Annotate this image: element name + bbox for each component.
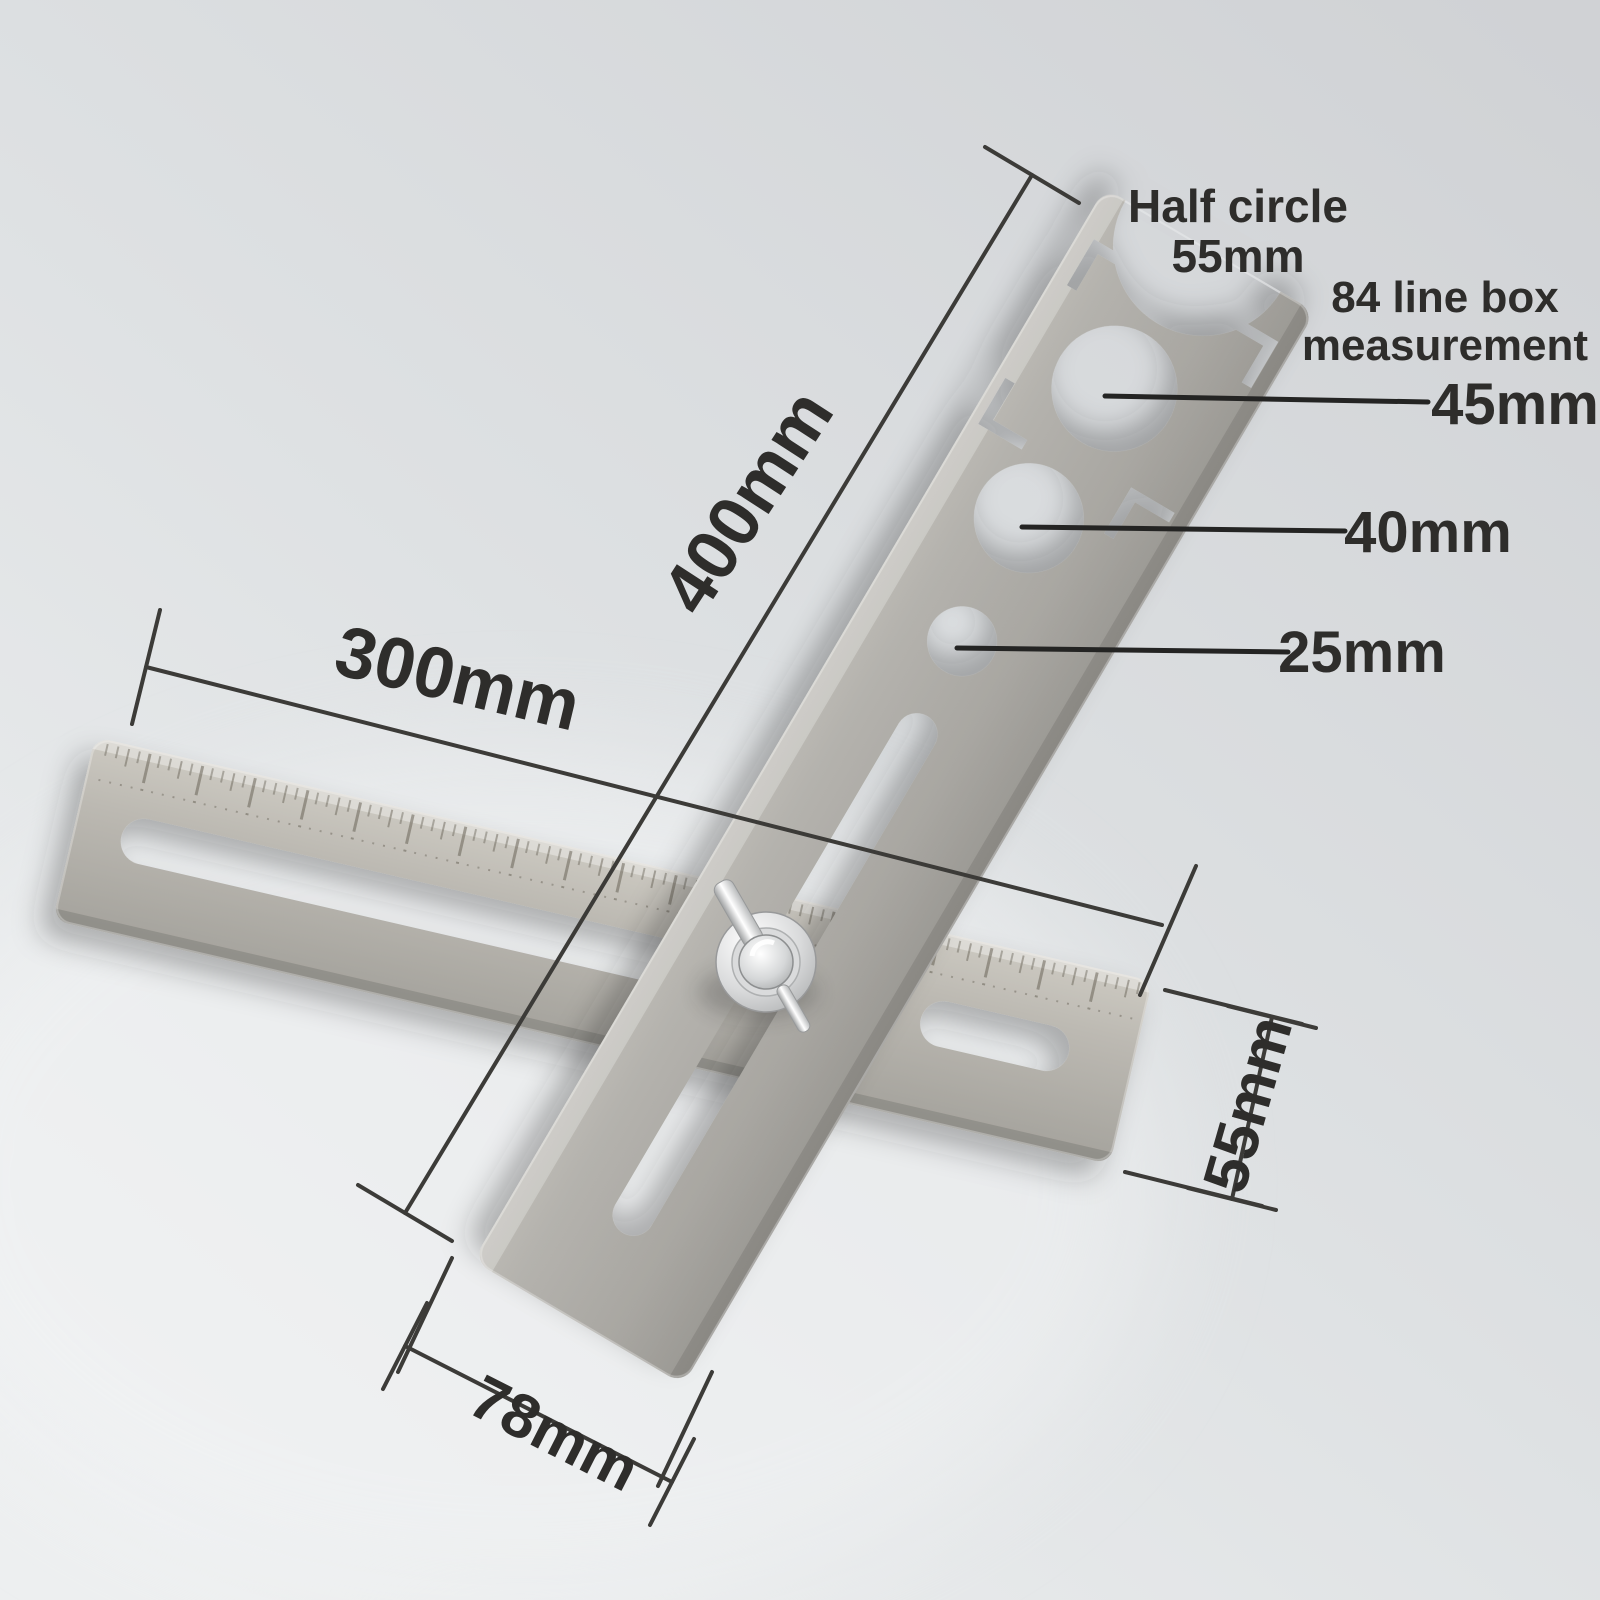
line-box-label: 84 line box <box>1331 273 1559 322</box>
hole-40mm-label: 40mm <box>1344 500 1512 565</box>
half-circle-label: Half circle <box>1128 180 1348 232</box>
locator-diagram: Half circle 55mm 84 line box measurement… <box>0 0 1600 1600</box>
half-circle-value: 55mm <box>1172 230 1305 282</box>
line-box-label-2: measurement <box>1302 321 1588 370</box>
diagram-canvas: Half circle 55mm 84 line box measurement… <box>0 0 1600 1600</box>
hole-45mm-label: 45mm <box>1431 372 1599 437</box>
hole-25mm-label: 25mm <box>1278 620 1446 685</box>
